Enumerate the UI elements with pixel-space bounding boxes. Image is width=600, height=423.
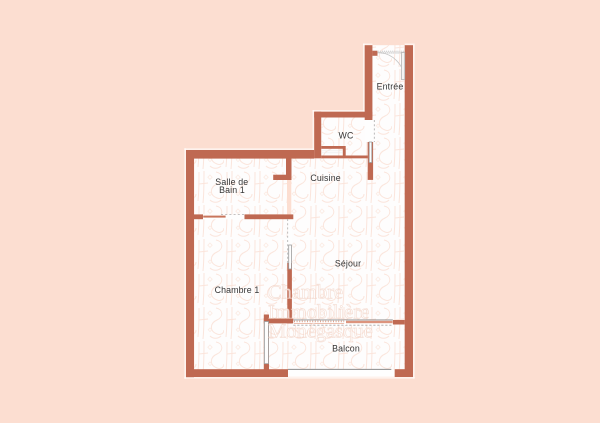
svg-text:Monégasque: Monégasque	[268, 321, 373, 343]
svg-text:Bain 1: Bain 1	[219, 185, 245, 195]
svg-text:Balcon: Balcon	[332, 344, 360, 354]
svg-text:Séjour: Séjour	[335, 258, 361, 268]
svg-text:Chambre 1: Chambre 1	[215, 285, 260, 295]
svg-text:Cuisine: Cuisine	[310, 173, 340, 183]
svg-text:Entrée: Entrée	[377, 81, 404, 91]
svg-text:Chambre: Chambre	[268, 282, 343, 304]
svg-text:WC: WC	[339, 130, 354, 140]
